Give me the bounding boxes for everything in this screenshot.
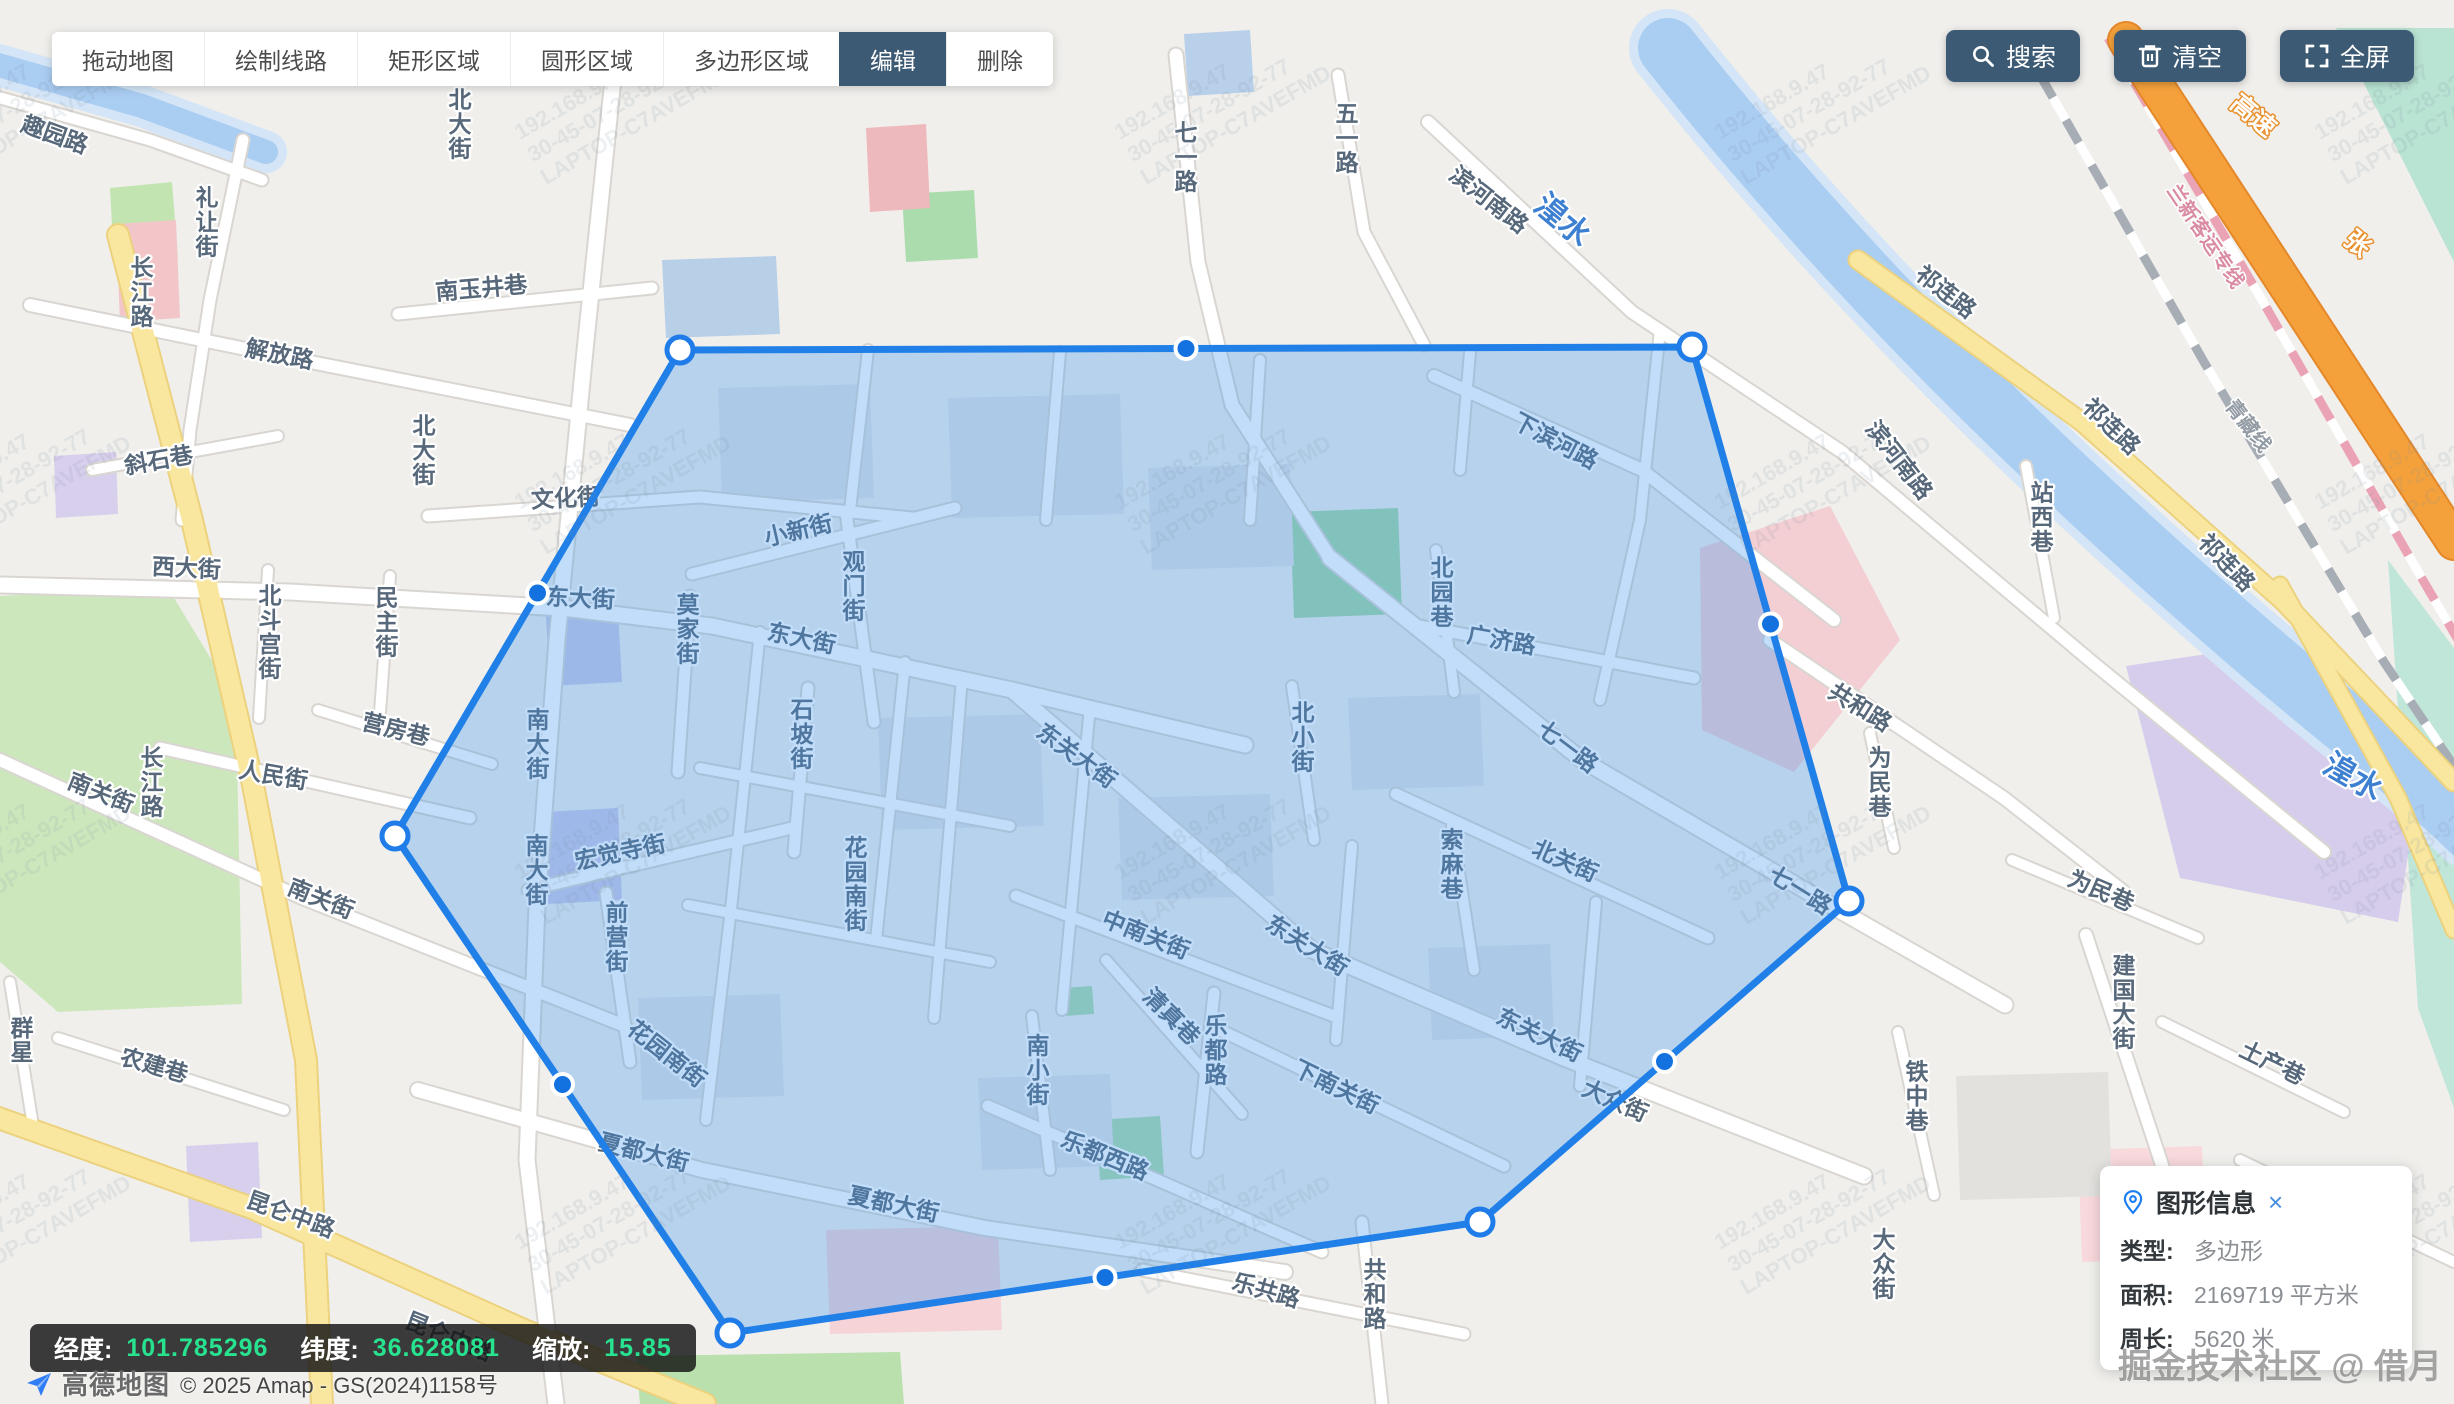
street-label: 礼让街 bbox=[195, 185, 219, 260]
map-app: 趣园路长江路长江路礼让街南玉井巷解放路斜石巷北大街北大街西大街文化街民主街北斗宫… bbox=[0, 0, 2454, 1404]
street-label: 五一路 bbox=[1336, 101, 1360, 176]
fullscreen-button-label: 全屏 bbox=[2340, 38, 2390, 74]
action-buttons: 搜索清空全屏 bbox=[1946, 30, 2414, 82]
status-value-0: 101.785296 bbox=[126, 1334, 268, 1363]
tool-edit[interactable]: 编辑 bbox=[839, 32, 946, 86]
drawing-toolbar: 拖动地图绘制线路矩形区域圆形区域多边形区域编辑删除 bbox=[52, 32, 1053, 86]
polygon-midpoint-handle[interactable] bbox=[1760, 614, 1781, 635]
map-canvas[interactable]: 趣园路长江路长江路礼让街南玉井巷解放路斜石巷北大街北大街西大街文化街民主街北斗宫… bbox=[0, 0, 2454, 1404]
info-row-value: 5620 米 bbox=[2194, 1320, 2275, 1354]
polygon-vertex-handle[interactable] bbox=[1467, 1209, 1493, 1235]
info-panel-title: 图形信息 bbox=[2156, 1184, 2256, 1220]
map-area bbox=[866, 124, 930, 212]
info-row-label: 面积: bbox=[2120, 1276, 2194, 1310]
street-label: 民主街 bbox=[375, 585, 399, 660]
street-label: 共和路 bbox=[1364, 1257, 1388, 1332]
status-label-2: 缩放: bbox=[532, 1330, 590, 1366]
close-icon[interactable]: × bbox=[2268, 1189, 2283, 1215]
tool-circle-area[interactable]: 圆形区域 bbox=[510, 32, 663, 86]
tool-polygon-area[interactable]: 多边形区域 bbox=[663, 32, 839, 86]
tool-rect-area[interactable]: 矩形区域 bbox=[357, 32, 510, 86]
street-label: 建国大街 bbox=[2112, 952, 2136, 1051]
polygon-midpoint-handle[interactable] bbox=[1654, 1051, 1675, 1072]
tool-delete[interactable]: 删除 bbox=[946, 32, 1053, 86]
polygon-midpoint-handle[interactable] bbox=[1176, 338, 1197, 359]
map-area bbox=[662, 256, 780, 338]
copyright-text: © 2025 Amap - GS(2024)1158号 bbox=[180, 1368, 498, 1400]
polygon-midpoint-handle[interactable] bbox=[552, 1074, 573, 1095]
search-button[interactable]: 搜索 bbox=[1946, 30, 2080, 82]
search-button-label: 搜索 bbox=[2006, 38, 2056, 74]
street-label: 北大街 bbox=[412, 413, 436, 488]
status-value-1: 36.628081 bbox=[373, 1334, 500, 1363]
info-row-2: 周长:5620 米 bbox=[2120, 1320, 2392, 1354]
street-label: 长江路 bbox=[131, 255, 155, 330]
shape-info-panel: 图形信息 × 类型:多边形面积:2169719 平方米周长:5620 米 bbox=[2100, 1166, 2412, 1370]
info-row-label: 类型: bbox=[2120, 1232, 2194, 1266]
tool-draw-line[interactable]: 绘制线路 bbox=[204, 32, 357, 86]
map-attribution: 高德地图 © 2025 Amap - GS(2024)1158号 bbox=[26, 1365, 498, 1402]
polygon-vertex-handle[interactable] bbox=[1836, 888, 1862, 914]
info-row-value: 2169719 平方米 bbox=[2194, 1276, 2359, 1310]
polygon-vertex-handle[interactable] bbox=[717, 1320, 743, 1346]
clear-button[interactable]: 清空 bbox=[2114, 30, 2246, 82]
info-panel-rows: 类型:多边形面积:2169719 平方米周长:5620 米 bbox=[2120, 1232, 2392, 1354]
street-label: 铁中巷 bbox=[1905, 1059, 1930, 1134]
amap-logo-icon bbox=[26, 1371, 52, 1397]
map-area bbox=[1956, 1072, 2112, 1200]
street-label: 北大街 bbox=[448, 87, 472, 162]
trash-icon bbox=[2138, 43, 2162, 69]
status-value-2: 15.85 bbox=[604, 1334, 672, 1363]
street-label: 北斗宫街 bbox=[258, 582, 282, 681]
street-label: 西大街 bbox=[151, 553, 221, 583]
fullscreen-button[interactable]: 全屏 bbox=[2280, 30, 2414, 82]
polygon-midpoint-handle[interactable] bbox=[1095, 1267, 1116, 1288]
info-row-1: 面积:2169719 平方米 bbox=[2120, 1276, 2392, 1310]
polygon-midpoint-handle[interactable] bbox=[527, 583, 548, 604]
status-label-0: 经度: bbox=[54, 1330, 112, 1366]
polygon-vertex-handle[interactable] bbox=[667, 337, 693, 363]
fullscreen-icon bbox=[2304, 43, 2330, 69]
polygon-vertex-handle[interactable] bbox=[1679, 334, 1705, 360]
info-row-0: 类型:多边形 bbox=[2120, 1232, 2392, 1266]
location-pin-icon bbox=[2120, 1189, 2146, 1215]
street-label: 站西巷 bbox=[2030, 480, 2055, 555]
info-row-label: 周长: bbox=[2120, 1320, 2194, 1354]
info-row-value: 多边形 bbox=[2194, 1232, 2263, 1266]
search-icon bbox=[1970, 43, 1996, 69]
street-label: 大众街 bbox=[1872, 1227, 1896, 1302]
clear-button-label: 清空 bbox=[2172, 38, 2222, 74]
amap-logo-text: 高德地图 bbox=[62, 1365, 170, 1402]
street-label: 群星 bbox=[10, 1015, 34, 1065]
tool-drag-map[interactable]: 拖动地图 bbox=[52, 32, 204, 86]
street-label: 长江路 bbox=[141, 745, 165, 820]
polygon-vertex-handle[interactable] bbox=[382, 823, 408, 849]
status-label-1: 纬度: bbox=[300, 1330, 358, 1366]
